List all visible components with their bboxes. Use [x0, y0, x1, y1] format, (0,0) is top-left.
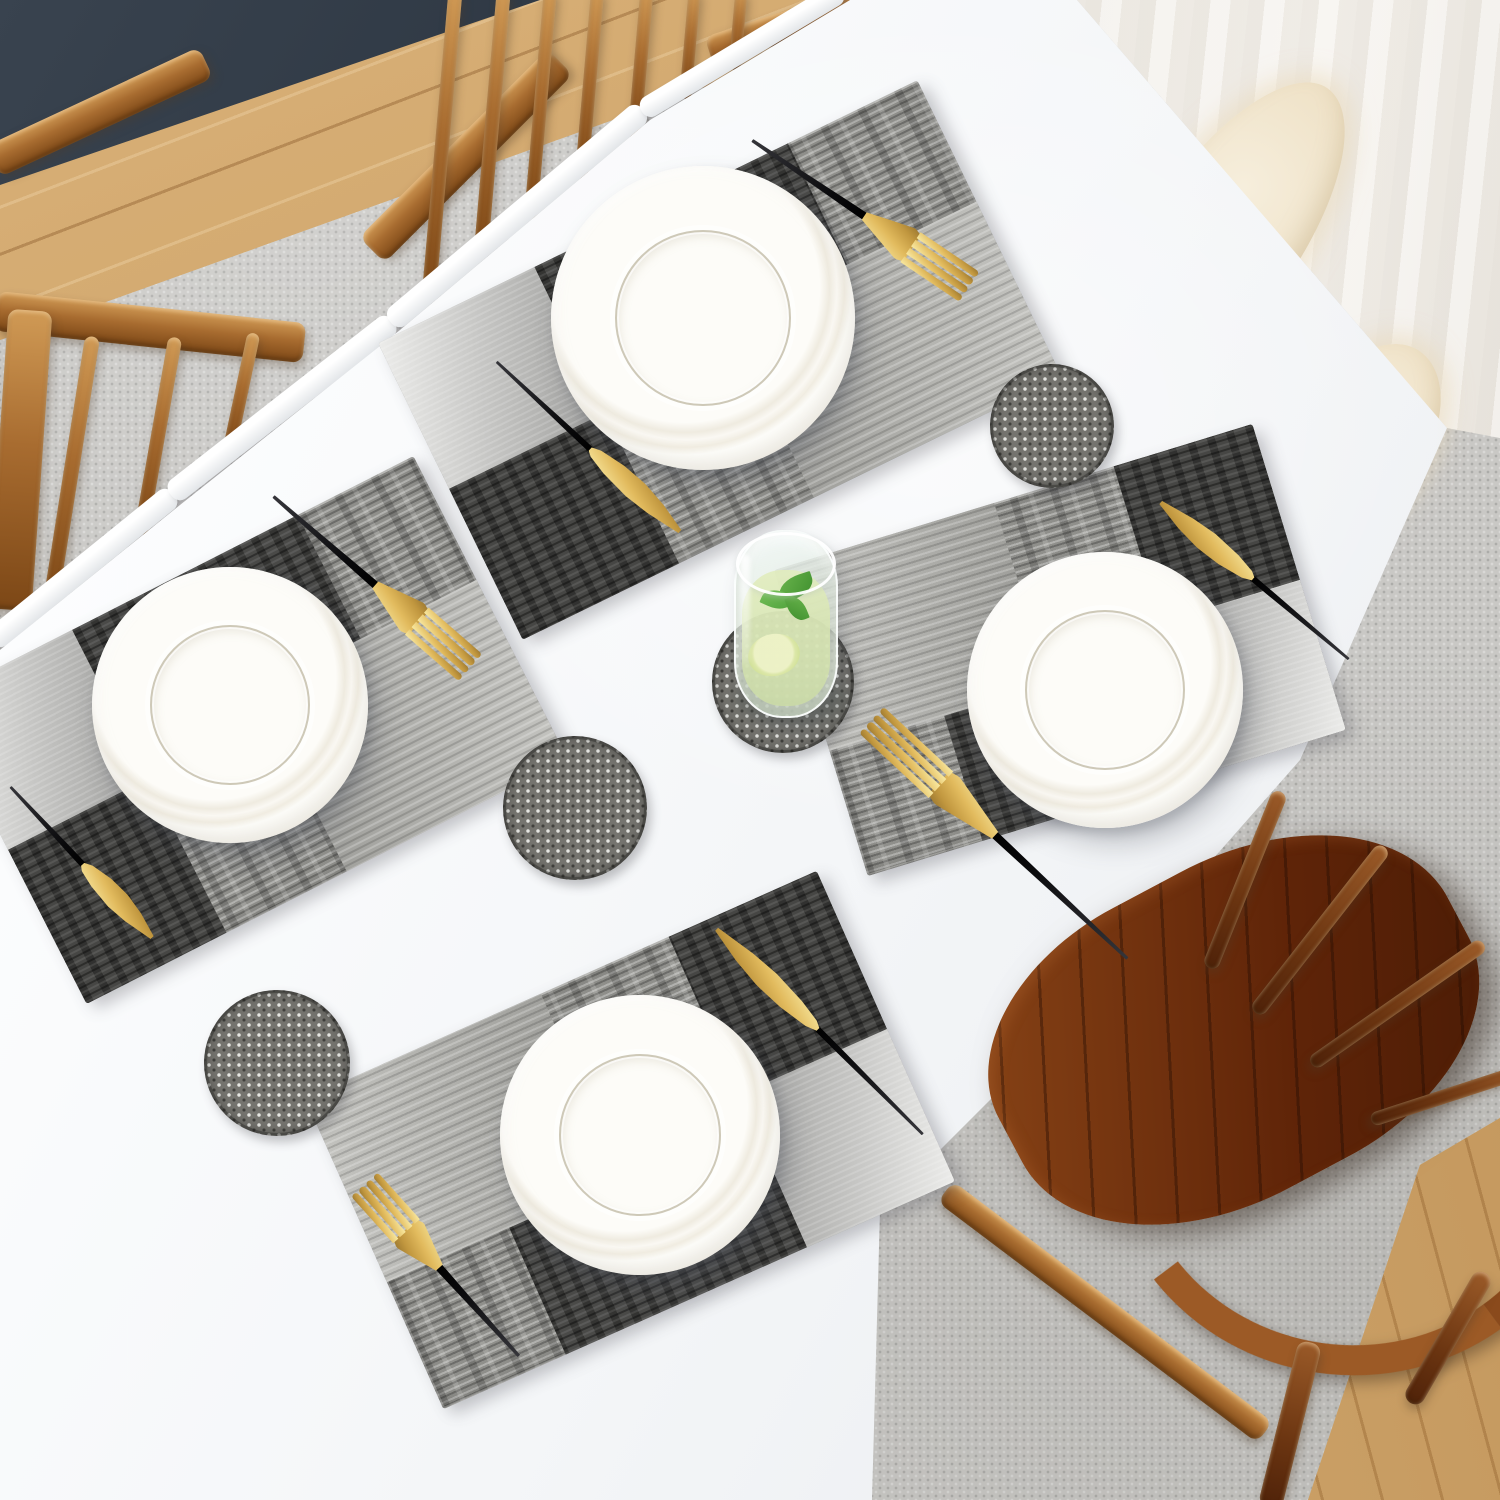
dinner-plate — [92, 567, 368, 843]
glass-highlight — [740, 554, 750, 664]
dinner-plate — [967, 552, 1243, 828]
dinner-plate — [500, 995, 780, 1275]
woven-coaster — [990, 364, 1114, 488]
photo-dining-table-scene — [0, 0, 1500, 1500]
drink-glass — [726, 524, 846, 728]
glass-rim — [736, 532, 836, 596]
woven-coaster — [204, 990, 350, 1136]
woven-coaster — [503, 736, 647, 880]
dinner-plate — [551, 166, 855, 470]
